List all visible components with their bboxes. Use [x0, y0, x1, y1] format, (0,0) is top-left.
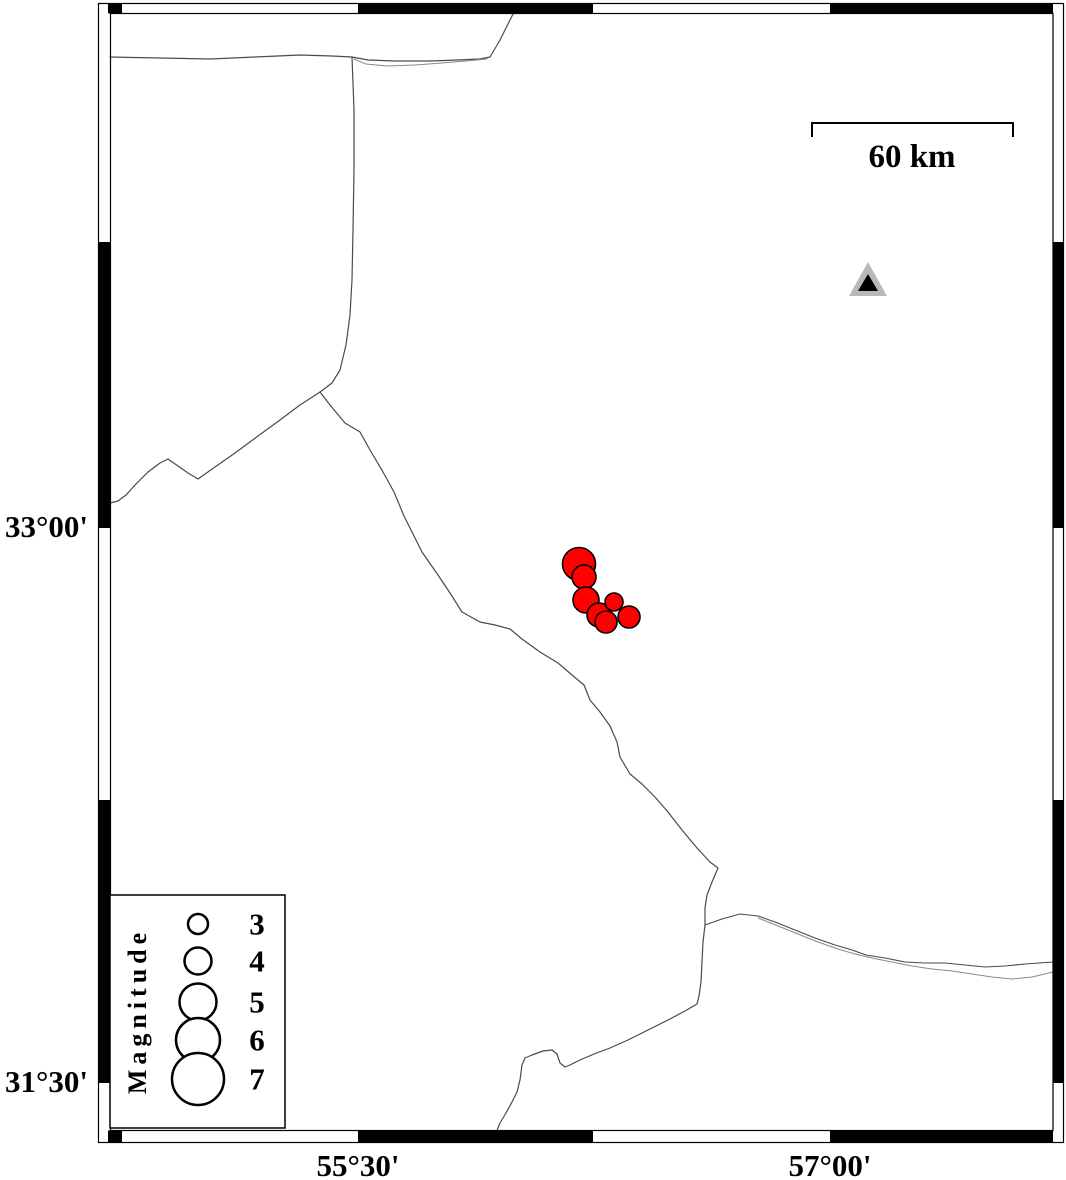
scale-bar: 60 km [812, 123, 1013, 175]
frame-black-segment [108, 4, 122, 14]
frame-black-segment [830, 4, 1053, 14]
frame-black-segment [1053, 242, 1064, 528]
frame-black-segment [358, 4, 593, 14]
legend-label-mag-3: 3 [249, 907, 265, 942]
earthquake-point [595, 611, 617, 633]
west-branch-boundary [110, 392, 320, 503]
earthquake-cluster [563, 548, 641, 634]
scale-bar-label: 60 km [868, 139, 955, 175]
legend-label-mag-6: 6 [249, 1023, 265, 1058]
southeast-boundary-lower [758, 918, 1053, 979]
frame-black-segment [830, 1131, 1053, 1143]
legend-label-mag-7: 7 [249, 1062, 265, 1097]
magnitude-legend: Magnitude 34567 [110, 895, 285, 1128]
legend-label-mag-5: 5 [249, 985, 265, 1020]
north-boundary [110, 14, 513, 61]
central-boundary [320, 392, 718, 1133]
map-canvas: 60 km Magnitude 34567 33°00' 31°30' 55°3… [0, 0, 1066, 1180]
lon-label-55-30: 55°30' [316, 1148, 399, 1180]
lat-label-33-00: 33°00' [5, 509, 88, 544]
earthquake-point [572, 565, 596, 589]
frame-black-segment [108, 1131, 122, 1143]
earthquake-point [605, 593, 623, 611]
legend-title: Magnitude [123, 928, 152, 1094]
legend-circle-mag-3 [188, 914, 208, 934]
scale-bar-bracket [812, 123, 1013, 137]
legend-circle-mag-5 [180, 984, 217, 1021]
legend-circle-mag-4 [185, 948, 212, 975]
earthquake-point [618, 606, 640, 628]
frame-black-segment [99, 242, 111, 528]
frame-black-segment [358, 1131, 593, 1143]
lon-label-57-00: 57°00' [788, 1148, 871, 1180]
frame-black-segment [99, 800, 111, 1083]
station-triangle-marker [849, 262, 887, 296]
legend-label-mag-4: 4 [249, 944, 265, 979]
legend-circle-mag-7 [172, 1053, 224, 1105]
west-vertical-boundary [320, 57, 354, 392]
seismicity-map-figure: 60 km Magnitude 34567 33°00' 31°30' 55°3… [0, 0, 1066, 1180]
frame-black-segment [1053, 800, 1064, 1083]
lat-label-31-30: 31°30' [5, 1064, 88, 1099]
